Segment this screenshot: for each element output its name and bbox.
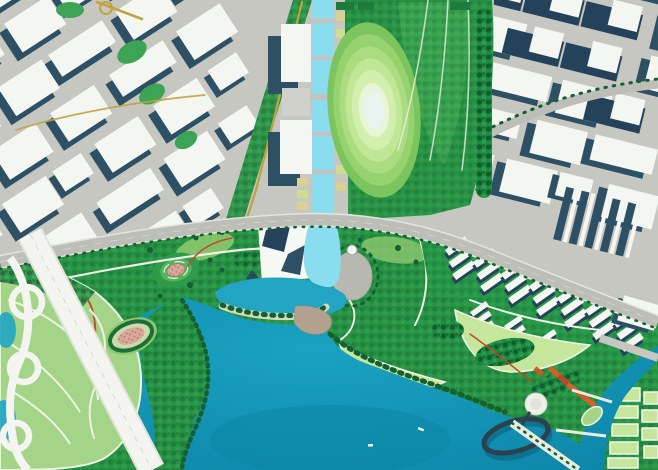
masterplan-map: Aerial masterplan rendering of a coastal…: [0, 0, 658, 470]
tree-belt: [476, 8, 492, 198]
canal-bridge: [306, 18, 340, 23]
masterplan-canvas: Aerial masterplan rendering of a coastal…: [0, 0, 658, 470]
